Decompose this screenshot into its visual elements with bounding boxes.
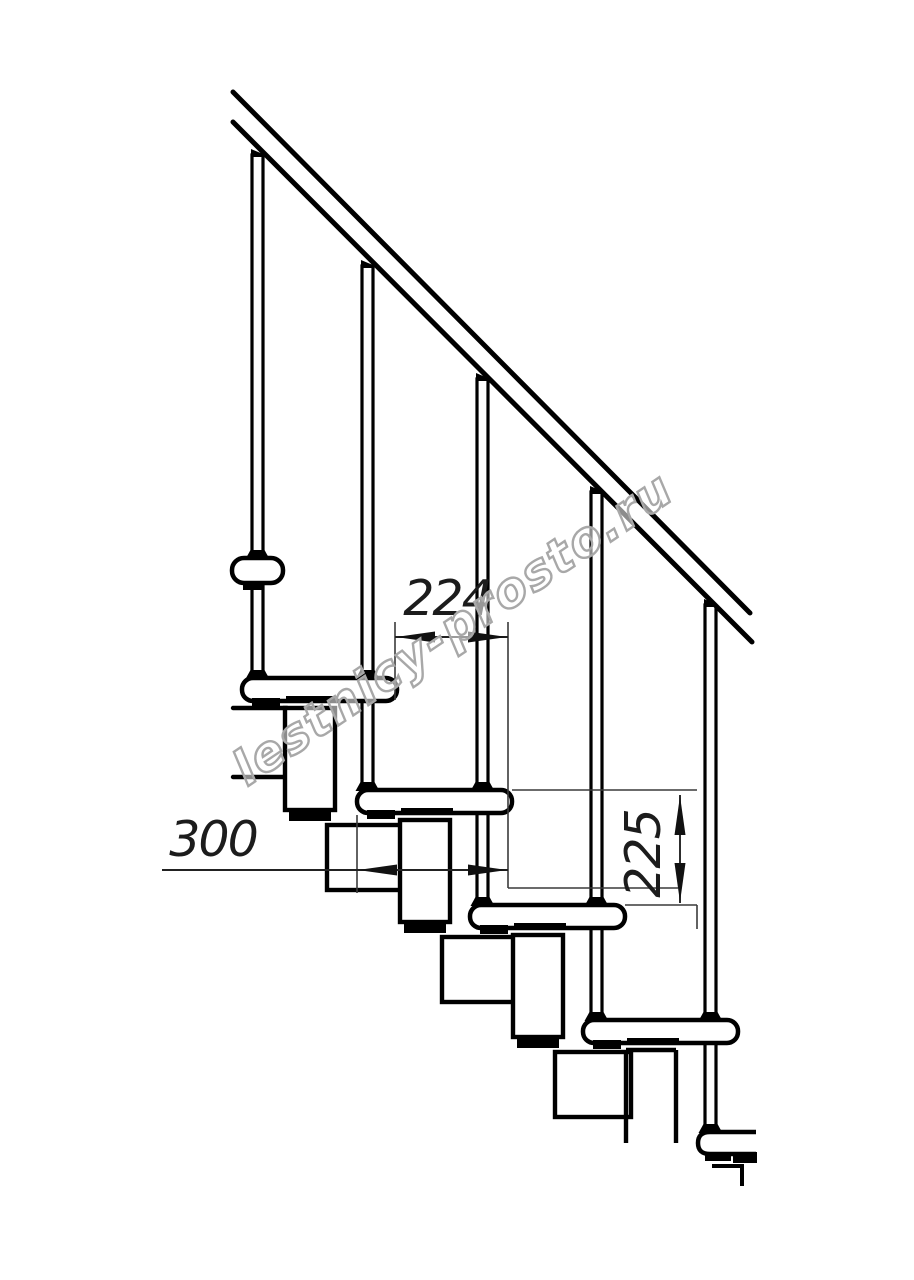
support-module-3 [555, 1052, 631, 1117]
bottom-cutoff-lines [712, 1166, 742, 1186]
tread-connector-icon [699, 1012, 723, 1021]
support-hanger-4 [626, 1050, 676, 1143]
baluster-5 [705, 605, 716, 1132]
handrail-bottom-edge [233, 122, 752, 642]
staircase-drawing: 224 300 225 lestnicy-prosto.ru [0, 0, 914, 1280]
support-hanger-2 [400, 820, 450, 922]
tread-connector-icon [585, 897, 609, 906]
staircase-drawing-page: 224 300 225 lestnicy-prosto.ru [0, 0, 914, 1280]
support-module-1 [327, 825, 403, 890]
tread-upper-end-view [232, 558, 283, 583]
arrow-up-icon [675, 796, 686, 835]
tread-connector-icon [246, 670, 270, 679]
dim-label-300: 300 [169, 811, 257, 868]
tread-connector-icon [356, 782, 380, 791]
tread-connector-icon [699, 1124, 723, 1133]
watermark-text: lestnicy-prosto.ru [223, 461, 684, 797]
handrail [233, 92, 752, 642]
tread-connector-icon [246, 550, 270, 559]
baluster-4 [591, 492, 602, 1020]
support-hanger-3 [513, 935, 563, 1037]
handrail-top-edge [233, 92, 750, 613]
handrail-band [233, 92, 752, 642]
baluster-1 [252, 155, 263, 678]
tread-connector-icon [471, 782, 495, 791]
arrow-down-icon [675, 863, 686, 902]
dim-label-225: 225 [615, 810, 672, 898]
tread-5-partial [698, 1132, 756, 1154]
tread-connector-icon [585, 1012, 609, 1021]
tread-connector-icon [471, 897, 495, 906]
support-module-2 [442, 937, 518, 1002]
